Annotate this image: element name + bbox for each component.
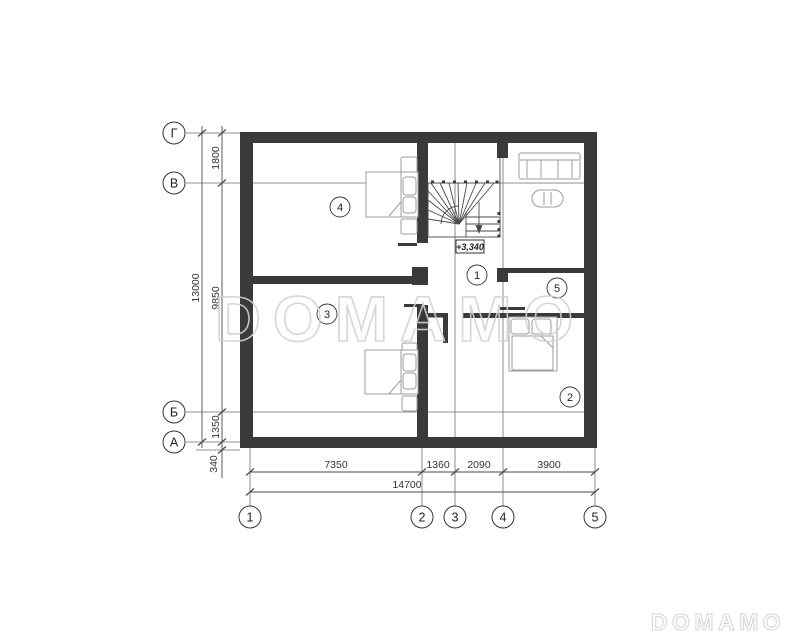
room-label-2: 2	[560, 387, 580, 407]
dim-bottom-seg-1: 1360	[426, 459, 450, 471]
dim-bottom-seg-3: 3900	[537, 459, 561, 471]
svg-text:2: 2	[419, 511, 426, 525]
axis-bottom-5: 5	[584, 506, 606, 528]
watermark-center: DOMAMO	[215, 283, 586, 355]
svg-text:4: 4	[337, 202, 343, 214]
pillow	[403, 373, 416, 389]
room-label-1: 1	[467, 265, 487, 285]
drawing-canvas: 13000 1800 9850 1350 340 7350 1360 2090 …	[0, 0, 800, 640]
dim-bottom-seg-0: 7350	[324, 459, 348, 471]
svg-text:3: 3	[452, 511, 459, 525]
elevation-mark: +3,340	[456, 240, 484, 253]
bed-room4	[366, 157, 418, 234]
axis-left-a: А	[163, 431, 185, 453]
nightstand	[401, 157, 417, 174]
room-label-4: 4	[330, 197, 350, 217]
pillow	[403, 177, 416, 195]
nightstand	[402, 396, 417, 411]
floor-plan: 13000 1800 9850 1350 340 7350 1360 2090 …	[0, 0, 800, 640]
svg-text:1: 1	[474, 270, 480, 282]
axis-left-b: Б	[163, 401, 185, 423]
watermark-corner: DOMAMO	[651, 609, 785, 635]
sofa	[519, 153, 580, 179]
dim-bottom-total: 14700	[392, 479, 421, 491]
door-room4	[398, 243, 417, 246]
staircase	[428, 158, 500, 237]
axis-bottom-1: 1	[239, 506, 261, 528]
svg-text:В: В	[170, 177, 178, 191]
dim-bottom-seg-2: 2090	[467, 459, 491, 471]
elevation-value: +3,340	[456, 242, 484, 252]
svg-text:А: А	[170, 436, 179, 450]
dim-left-seg-0: 1800	[210, 146, 222, 170]
svg-text:Г: Г	[171, 127, 178, 141]
axis-left-v: В	[163, 172, 185, 194]
axis-left-g: Г	[163, 122, 185, 144]
svg-text:Б: Б	[170, 406, 178, 420]
dim-left-total: 13000	[190, 273, 202, 302]
dim-left-seg-2: 1350	[210, 415, 222, 439]
dim-left-seg-3: 340	[208, 455, 220, 473]
nightstand	[401, 219, 417, 234]
svg-text:5: 5	[592, 511, 599, 525]
axis-bottom-4: 4	[492, 506, 514, 528]
pillow	[403, 197, 416, 213]
ottoman	[532, 190, 563, 207]
svg-text:2: 2	[567, 392, 573, 404]
axis-bottom-2: 2	[411, 506, 433, 528]
axis-bottom-3: 3	[444, 506, 466, 528]
svg-text:4: 4	[500, 511, 507, 525]
pillow	[403, 354, 416, 371]
svg-text:1: 1	[247, 511, 254, 525]
